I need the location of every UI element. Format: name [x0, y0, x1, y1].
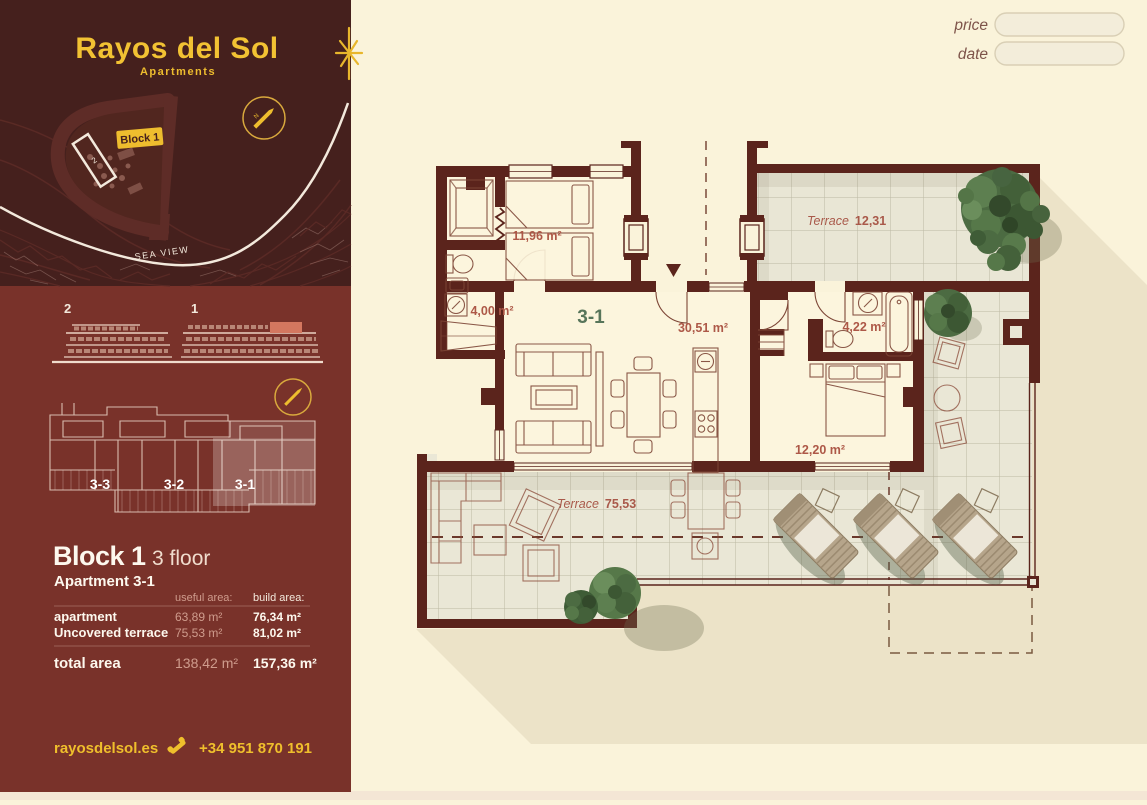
svg-text:4,22 m²: 4,22 m² [842, 320, 885, 334]
svg-text:75,53 m²: 75,53 m² [175, 626, 222, 640]
svg-text:total area: total area [54, 655, 121, 672]
svg-text:2: 2 [64, 301, 71, 316]
svg-text:date: date [958, 46, 989, 63]
svg-text:30,51 m²: 30,51 m² [678, 321, 728, 335]
svg-text:useful area:: useful area: [175, 592, 232, 604]
svg-text:apartment: apartment [54, 609, 118, 624]
svg-text:3-1: 3-1 [235, 476, 255, 492]
svg-text:Apartment 3-1: Apartment 3-1 [54, 573, 155, 590]
svg-text:Terrace75,53: Terrace75,53 [557, 497, 636, 511]
svg-text:rayosdelsol.es: rayosdelsol.es [54, 740, 158, 757]
svg-text:Apartments: Apartments [140, 66, 216, 78]
svg-text:12,20 m²: 12,20 m² [795, 443, 845, 457]
svg-text:3-2: 3-2 [164, 476, 184, 492]
svg-text:138,42 m²: 138,42 m² [175, 655, 238, 671]
svg-text:157,36 m²: 157,36 m² [253, 655, 317, 671]
svg-text:3 floor: 3 floor [152, 547, 210, 570]
svg-text:Uncovered terrace: Uncovered terrace [54, 625, 168, 640]
svg-text:3-1: 3-1 [577, 307, 605, 328]
svg-text:63,89 m²: 63,89 m² [175, 610, 222, 624]
svg-text:build area:: build area: [253, 592, 304, 604]
svg-text:3-3: 3-3 [90, 476, 110, 492]
svg-text:1: 1 [191, 301, 198, 316]
svg-text:Rayos del Sol: Rayos del Sol [75, 32, 278, 65]
svg-text:Block 1: Block 1 [53, 541, 146, 571]
svg-text:Terrace12,31: Terrace12,31 [807, 214, 886, 228]
svg-text:81,02 m²: 81,02 m² [253, 626, 301, 640]
svg-text:price: price [953, 17, 988, 34]
svg-text:76,34 m²: 76,34 m² [253, 610, 301, 624]
svg-text:11,96 m²: 11,96 m² [512, 229, 561, 243]
svg-text:4,00 m²: 4,00 m² [470, 304, 513, 318]
svg-text:+34 951 870 191: +34 951 870 191 [199, 740, 312, 757]
